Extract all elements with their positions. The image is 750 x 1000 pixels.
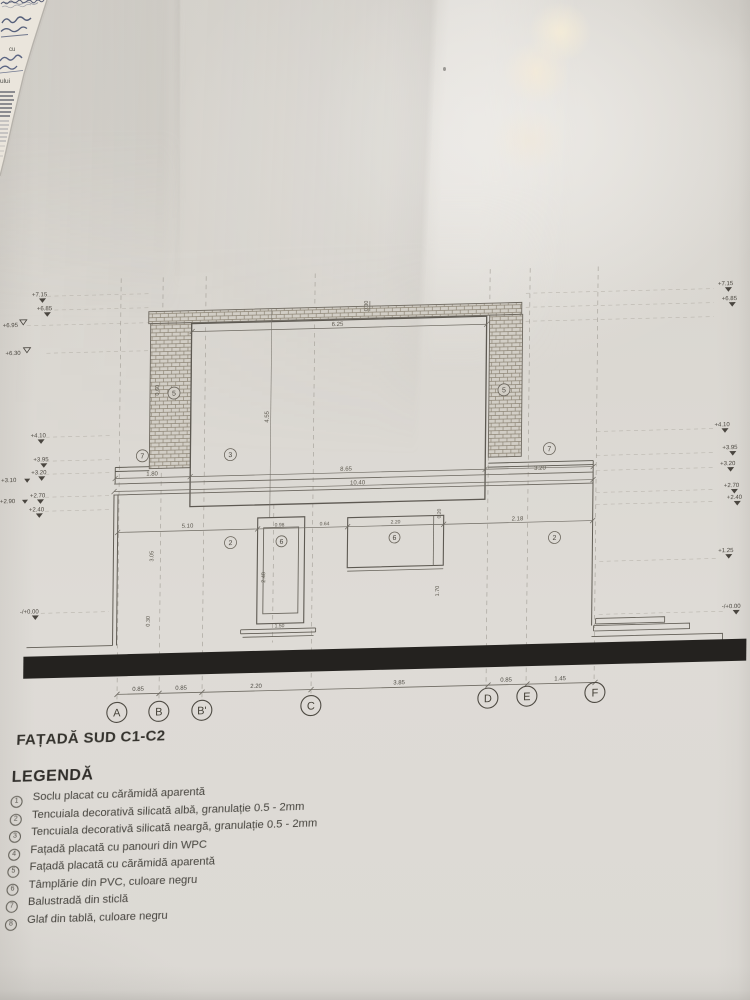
svg-text:+2.40: +2.40	[727, 495, 743, 501]
svg-text:B': B'	[197, 705, 207, 717]
svg-text:+2.90: +2.90	[0, 499, 16, 505]
svg-text:1.80: 1.80	[146, 471, 158, 477]
svg-text:+3.95: +3.95	[722, 445, 738, 451]
svg-text:2.48: 2.48	[261, 572, 267, 583]
svg-text:0.85: 0.85	[132, 687, 144, 693]
svg-text:2.18: 2.18	[512, 516, 524, 522]
svg-text:+2.70: +2.70	[30, 493, 46, 499]
svg-text:5.10: 5.10	[182, 524, 194, 530]
svg-text:+6.85: +6.85	[37, 306, 53, 312]
svg-text:0.30: 0.30	[146, 616, 152, 627]
svg-text:1.45: 1.45	[554, 676, 566, 682]
svg-text:2: 2	[229, 540, 233, 547]
svg-text:C: C	[307, 700, 315, 712]
svg-text:+2.70: +2.70	[724, 483, 740, 489]
svg-text:+3.20: +3.20	[720, 461, 736, 467]
svg-text:E: E	[523, 691, 530, 703]
svg-text:2.20: 2.20	[250, 684, 262, 690]
svg-text:+6.30: +6.30	[5, 351, 21, 357]
svg-text:5: 5	[172, 390, 176, 397]
svg-text:5: 5	[502, 387, 506, 394]
svg-text:6.25: 6.25	[332, 322, 344, 328]
svg-text:7: 7	[140, 453, 144, 460]
svg-text:7: 7	[547, 446, 551, 453]
svg-text:0.30: 0.30	[364, 300, 370, 311]
svg-text:+6.95: +6.95	[3, 323, 19, 329]
svg-text:10.40: 10.40	[350, 480, 366, 486]
svg-text:0.98: 0.98	[275, 522, 285, 528]
svg-text:3.85: 3.85	[393, 680, 405, 686]
svg-text:6: 6	[393, 535, 397, 542]
svg-text:+3.20: +3.20	[31, 470, 47, 476]
svg-text:A: A	[113, 707, 121, 719]
svg-text:3.20: 3.20	[534, 466, 546, 472]
svg-text:D: D	[484, 693, 492, 705]
svg-text:F: F	[591, 687, 598, 699]
svg-text:+2.40: +2.40	[29, 507, 45, 513]
svg-text:0.85: 0.85	[175, 686, 187, 692]
svg-text:+7.15: +7.15	[718, 281, 734, 287]
svg-text:+3.10: +3.10	[1, 478, 17, 484]
svg-text:B: B	[155, 706, 162, 718]
svg-text:+7.15: +7.15	[32, 292, 48, 298]
svg-text:0.20: 0.20	[437, 508, 443, 518]
svg-text:+6.85: +6.85	[722, 296, 738, 302]
svg-text:+1.25: +1.25	[718, 548, 734, 554]
svg-text:3: 3	[228, 452, 232, 459]
svg-text:+3.95: +3.95	[33, 457, 49, 463]
svg-text:0.85: 0.85	[500, 678, 512, 684]
svg-text:2.20: 2.20	[391, 519, 401, 525]
svg-text:6: 6	[280, 539, 284, 546]
svg-text:+4.10: +4.10	[31, 433, 47, 439]
svg-text:1.70: 1.70	[435, 586, 441, 597]
svg-text:4.55: 4.55	[265, 410, 271, 422]
svg-text:3.05: 3.05	[149, 551, 155, 562]
svg-text:0.64: 0.64	[320, 521, 330, 527]
svg-text:-/+0.00: -/+0.00	[722, 604, 742, 610]
svg-text:1.50: 1.50	[275, 623, 285, 629]
svg-text:+4.10: +4.10	[715, 422, 731, 428]
svg-text:0.60: 0.60	[155, 385, 161, 396]
svg-text:-/+0.00: -/+0.00	[20, 609, 40, 615]
svg-text:8.65: 8.65	[340, 467, 352, 473]
svg-text:2: 2	[552, 535, 556, 542]
